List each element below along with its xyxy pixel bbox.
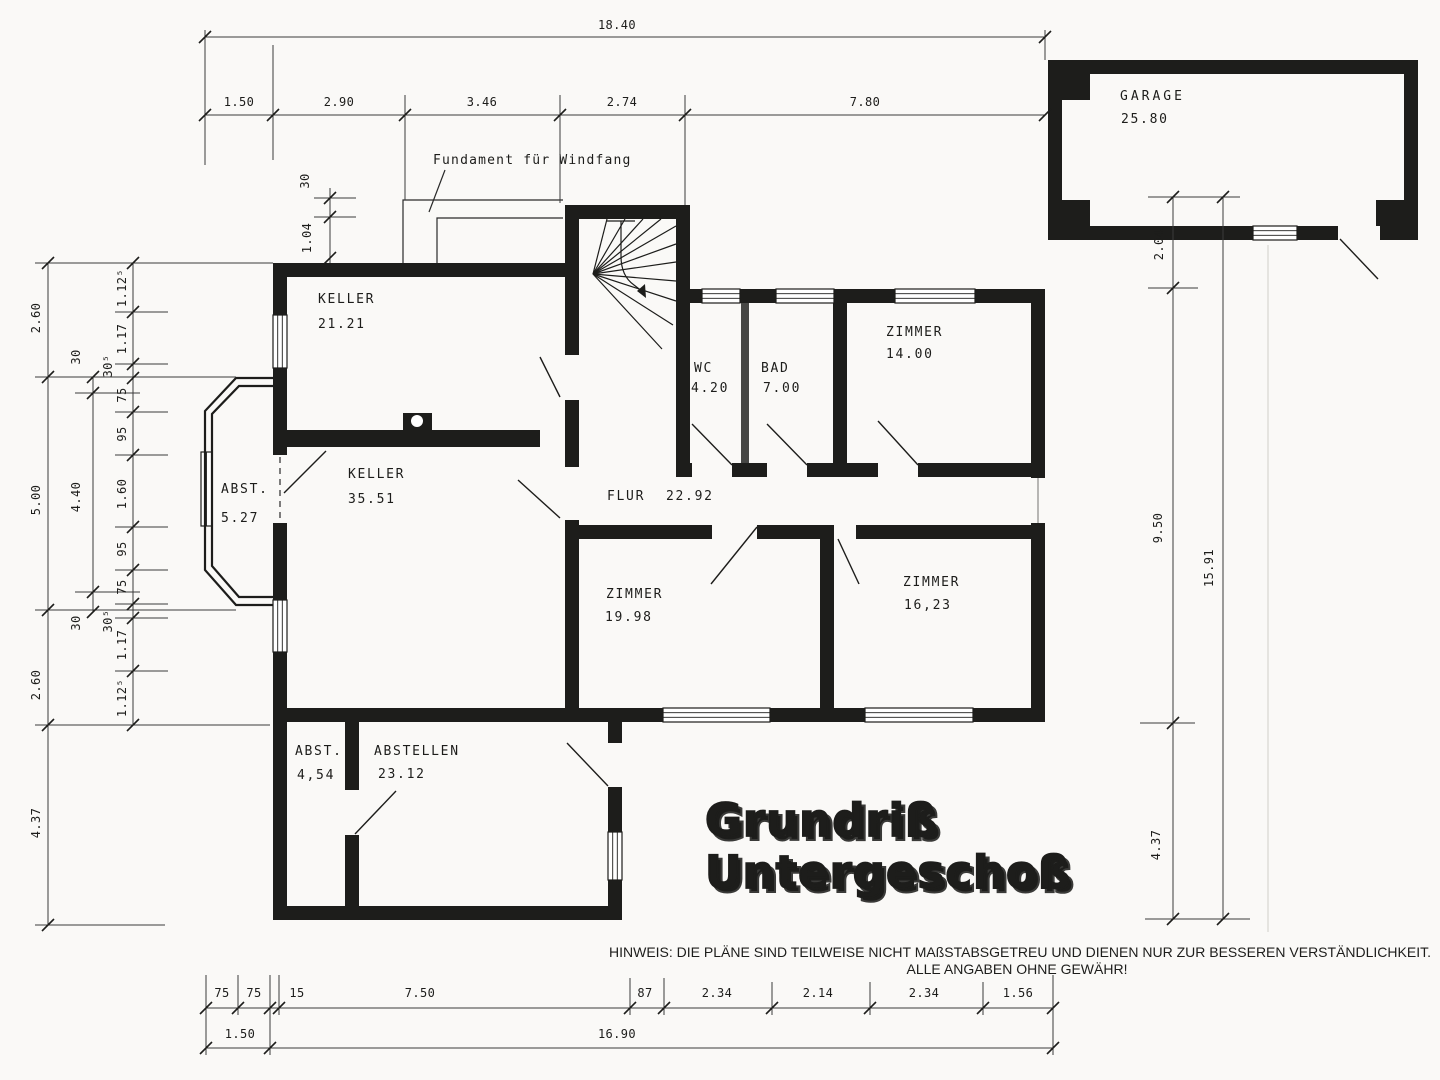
wc-bad-partition-wall <box>741 303 749 463</box>
dim-bottom1-6: 2.14 <box>803 986 834 1000</box>
note-line2: ALLE ANGABEN OHNE GEWÄHR! <box>907 961 1128 977</box>
dim-right-2: 4.37 <box>1149 830 1163 861</box>
floor-plan-canvas: KELLER 21.21 KELLER 35.51 ABST. 5.27 WC … <box>0 0 1440 1080</box>
dim-left-inner-10: 1.12⁵ <box>115 679 129 717</box>
room-keller2-area: 35.51 <box>348 492 396 507</box>
dim-left-mid-2: 30 <box>69 615 83 630</box>
dim-right-3: 15.91 <box>1202 549 1216 587</box>
note-line1: HINWEIS: DIE PLÄNE SIND TEILWEISE NICHT … <box>609 944 1431 960</box>
dim-bottom1-8: 1.56 <box>1003 986 1034 1000</box>
room-zimmer1-name: ZIMMER <box>886 325 943 340</box>
room-abstellen-area: 23.12 <box>378 767 426 782</box>
room-zimmer1-area: 14.00 <box>886 347 934 362</box>
dim-windfang-1: 1.04 <box>300 223 314 254</box>
dim-top-4: 7.80 <box>850 95 881 109</box>
room-zimmer3-name: ZIMMER <box>903 575 960 590</box>
dim-left-inner-5: 1.60 <box>115 479 129 510</box>
dim-left-inner-3: 75 <box>115 387 129 402</box>
dim-left-inner-6: 95 <box>115 541 129 556</box>
dim-bottom2-0: 1.50 <box>225 1027 256 1041</box>
dim-left-outer-2: 2.60 <box>29 670 43 701</box>
windfang-annotation: Fundament für Windfang <box>433 153 632 168</box>
dim-top-2: 3.46 <box>467 95 498 109</box>
room-zimmer2-area: 19.98 <box>605 610 653 625</box>
dim-left-outer-0: 2.60 <box>29 303 43 334</box>
dim-left-inner-0: 1.12⁵ <box>115 269 129 307</box>
title-line1: Grundriß <box>705 794 938 847</box>
room-abst1-name: ABST. <box>221 482 269 497</box>
dim-right-1: 9.50 <box>1151 513 1165 544</box>
dim-bottom2-1: 16.90 <box>598 1027 636 1041</box>
room-keller1-area: 21.21 <box>318 317 366 332</box>
dim-bottom1-5: 2.34 <box>702 986 733 1000</box>
dim-left-inner-4: 95 <box>115 426 129 441</box>
room-abst1-area: 5.27 <box>221 511 259 526</box>
room-keller2-name: KELLER <box>348 467 405 482</box>
dim-left-mid-0: 30 <box>69 349 83 364</box>
dim-left-inner-7: 75 <box>115 579 129 594</box>
room-bad-area: 7.00 <box>763 381 801 396</box>
dim-bottom1-7: 2.34 <box>909 986 940 1000</box>
dim-top-3: 2.74 <box>607 95 638 109</box>
dim-right-0: 2.04 <box>1152 230 1166 261</box>
dim-windfang-0: 30 <box>298 173 312 188</box>
room-abst2-area: 4,54 <box>297 768 335 783</box>
dim-top-1: 2.90 <box>324 95 355 109</box>
room-bad-name: BAD <box>761 361 790 376</box>
title-line2: Untergeschoß <box>705 846 1071 899</box>
dim-top-total: 18.40 <box>598 18 636 32</box>
floor-plan-page: KELLER 21.21 KELLER 35.51 ABST. 5.27 WC … <box>0 0 1440 1080</box>
dim-bottom1-0: 75 <box>214 986 229 1000</box>
dim-bottom1-4: 87 <box>637 986 652 1000</box>
dim-left-inner-9: 1.17 <box>115 630 129 661</box>
room-abst2-name: ABST. <box>295 744 343 759</box>
room-abstellen-name: ABSTELLEN <box>374 744 460 759</box>
dim-bottom1-3: 7.50 <box>405 986 436 1000</box>
room-garage-name: GARAGE <box>1120 89 1185 104</box>
dim-bottom1-2: 15 <box>289 986 304 1000</box>
dim-left-inner-1: 1.17 <box>115 324 129 355</box>
dim-left-outer-1: 5.00 <box>29 485 43 516</box>
room-wc-name: WC <box>694 361 713 376</box>
room-garage-area: 25.80 <box>1121 112 1169 127</box>
dim-left-outer-3: 4.37 <box>29 808 43 839</box>
room-flur-name: FLUR <box>607 489 645 504</box>
room-wc-area: 4.20 <box>691 381 729 396</box>
dim-left-inner-8: 30⁵ <box>101 610 115 633</box>
room-keller1-name: KELLER <box>318 292 375 307</box>
dim-left-mid-1: 4.40 <box>69 482 83 513</box>
room-zimmer3-area: 16,23 <box>904 598 952 613</box>
room-flur-area: 22.92 <box>666 489 714 504</box>
chimney-flue <box>411 415 423 427</box>
dim-bottom1-1: 75 <box>246 986 261 1000</box>
room-zimmer2-name: ZIMMER <box>606 587 663 602</box>
dim-top-0: 1.50 <box>224 95 255 109</box>
dim-left-inner-2: 30⁵ <box>101 355 115 378</box>
